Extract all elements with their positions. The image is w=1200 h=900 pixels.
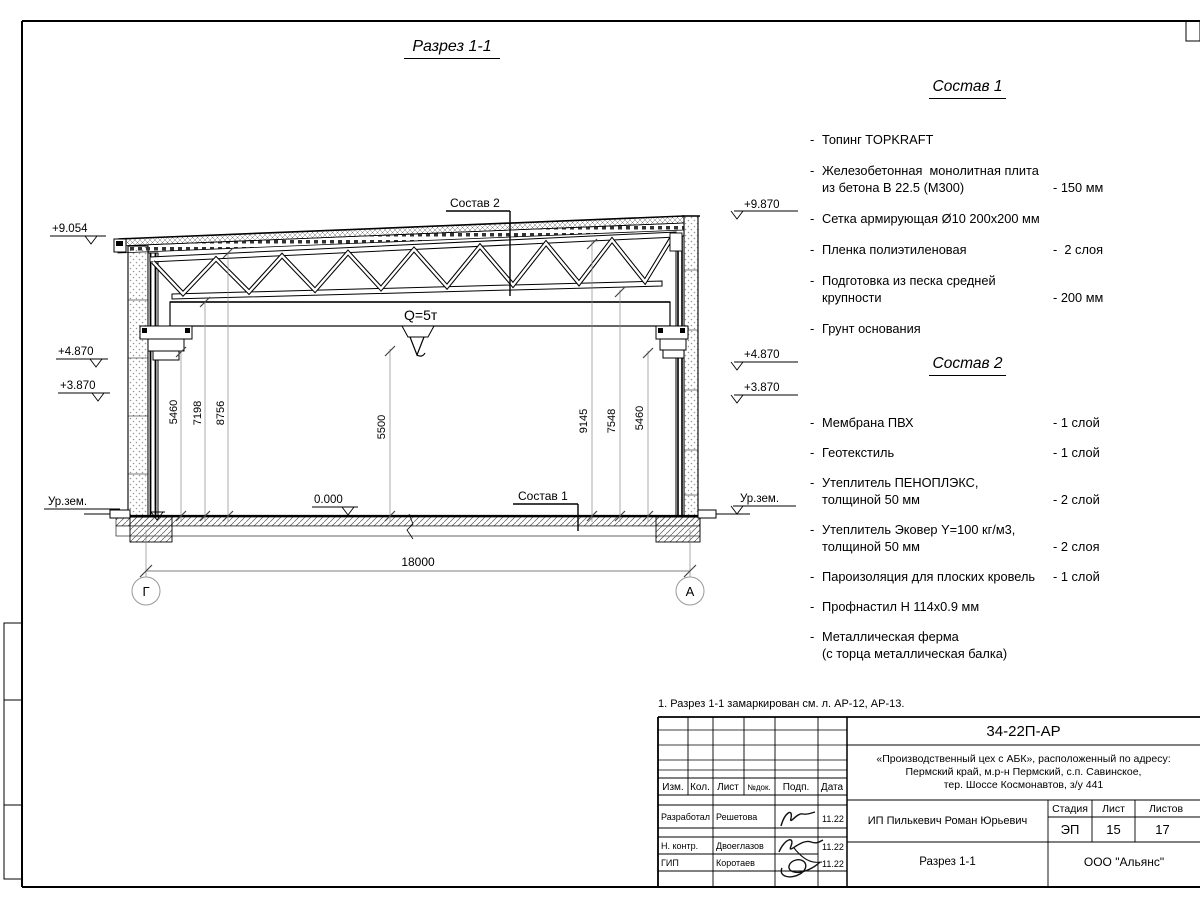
left-footing xyxy=(130,517,172,542)
dim-5460-left: 5460 xyxy=(168,400,180,424)
signatures xyxy=(779,812,823,877)
dim-7548: 7548 xyxy=(606,409,618,433)
row1-name: Двоеглазов xyxy=(716,841,764,851)
stage-header: Стадия xyxy=(1048,800,1092,817)
left-wall xyxy=(128,246,148,517)
sheet-number: 15 xyxy=(1092,817,1135,841)
floor-level-mark: 0.000 xyxy=(312,494,358,515)
list-item: -Железобетонная монолитная плита из бето… xyxy=(810,162,1125,196)
dim-8756: 8756 xyxy=(215,401,227,425)
sheet-header: Лист xyxy=(1092,800,1135,817)
callout-floor-label: Состав 1 xyxy=(518,489,568,503)
elev-4870-right: +4.870 xyxy=(744,349,780,361)
list-item: -Топинг TOPKRAFT xyxy=(810,131,1125,148)
page-title: Разрез 1-1 xyxy=(404,38,500,59)
span-dimension: 18000 Г А xyxy=(132,530,704,605)
col-podp: Подп. xyxy=(783,782,810,793)
composition-2-list: Состав 2 -Мембрана ПВХ- 1 слой -Геотекст… xyxy=(810,355,1125,675)
stage-value: ЭП xyxy=(1048,817,1092,841)
crane-bridge: Q=5т xyxy=(140,302,688,360)
list-item: -Утеплитель ПЕНОПЛЭКС, толщиной 50 мм- 2… xyxy=(810,474,1125,508)
list-item: -Подготовка из песка средней крупности- … xyxy=(810,272,1125,306)
doc-number: 34-22П-АР xyxy=(847,719,1200,743)
dim-7198: 7198 xyxy=(192,401,204,425)
elev-9054: +9.054 xyxy=(52,223,88,235)
left-column xyxy=(148,253,158,517)
composition-1-title: Состав 1 xyxy=(929,78,1007,99)
sheet-note: 1. Разрез 1-1 замаркирован см. л. АР-12,… xyxy=(658,698,904,710)
composition-2-title: Состав 2 xyxy=(929,355,1007,376)
left-plinth xyxy=(110,510,130,518)
dim-5500: 5500 xyxy=(376,415,388,439)
right-wall xyxy=(684,216,698,517)
elev-3870-left: +3.870 xyxy=(60,380,96,392)
elev-4870-left: +4.870 xyxy=(58,346,94,358)
list-item: -Мембрана ПВХ- 1 слой xyxy=(810,414,1125,431)
callout-roof-label: Состав 2 xyxy=(450,196,500,210)
ground-level-right-label: Ур.зем. xyxy=(740,493,779,505)
row1-date: 11.22 xyxy=(822,842,844,852)
right-footing xyxy=(656,517,700,542)
col-ndok: №док. xyxy=(747,783,770,792)
composition-1-list: Состав 1 -Топинг TOPKRAFT -Железобетонна… xyxy=(810,78,1125,351)
dim-5460-right: 5460 xyxy=(634,406,646,430)
col-kol: Кол. xyxy=(690,782,710,793)
elevation-marks-right: +9.870 +4.870 +3.870 Ур.зем. xyxy=(731,199,798,514)
col-list: Лист xyxy=(717,782,739,793)
crane-hook-icon xyxy=(410,337,425,356)
company-name: ООО "Альянс" xyxy=(1048,843,1200,881)
ground-level-left-label: Ур.зем. xyxy=(48,496,87,508)
row0-name: Решетова xyxy=(716,812,757,822)
list-item: -Профнастил Н 114х0.9 мм xyxy=(810,598,1125,615)
sheets-total: 17 xyxy=(1135,817,1190,841)
project-description: «Производственный цех с АБК», расположен… xyxy=(847,746,1200,798)
right-plinth xyxy=(698,510,716,518)
row2-date: 11.22 xyxy=(822,859,844,869)
list-item: -Пленка полиэтиленовая- 2 слоя xyxy=(810,241,1125,258)
row0-role: Разработал xyxy=(661,812,710,822)
col-izm: Изм. xyxy=(662,782,683,793)
elev-3870-right: +3.870 xyxy=(744,382,780,394)
signature-razrabotal xyxy=(781,812,815,826)
crane-trolley xyxy=(402,326,434,337)
col-data: Дата xyxy=(821,782,844,793)
sheets-header: Листов xyxy=(1135,800,1197,817)
list-item: -Металлическая ферма (с торца металличес… xyxy=(810,628,1125,662)
list-item: -Пароизоляция для плоских кровель- 1 сло… xyxy=(810,568,1125,585)
row2-name: Коротаев xyxy=(716,858,755,868)
list-item: -Утеплитель Эковер Y=100 кг/м3, толщиной… xyxy=(810,521,1125,555)
right-corbel xyxy=(656,326,688,358)
drawing-title-cell: Разрез 1-1 xyxy=(847,843,1048,881)
floor-level-label: 0.000 xyxy=(314,494,343,506)
row2-role: ГИП xyxy=(661,858,679,868)
axis-left-label: Г xyxy=(142,584,149,599)
row0-date: 11.22 xyxy=(822,814,844,824)
dim-9145: 9145 xyxy=(578,409,590,433)
list-item: -Геотекстиль- 1 слой xyxy=(810,444,1125,461)
elev-9870: +9.870 xyxy=(744,199,780,211)
drawing-sheet: Q=5т xyxy=(0,0,1200,900)
client-name: ИП Пилькевич Роман Юрьевич xyxy=(847,801,1048,840)
floor xyxy=(84,510,750,542)
list-item: -Грунт основания xyxy=(810,320,1125,337)
span-dim-label: 18000 xyxy=(401,555,435,569)
axis-right-label: А xyxy=(686,584,695,599)
list-item: -Сетка армирующая Ø10 200х200 мм xyxy=(810,210,1125,227)
signature-nkontr xyxy=(779,840,823,852)
crane-capacity-label: Q=5т xyxy=(404,307,438,323)
row1-role: Н. контр. xyxy=(661,841,698,851)
